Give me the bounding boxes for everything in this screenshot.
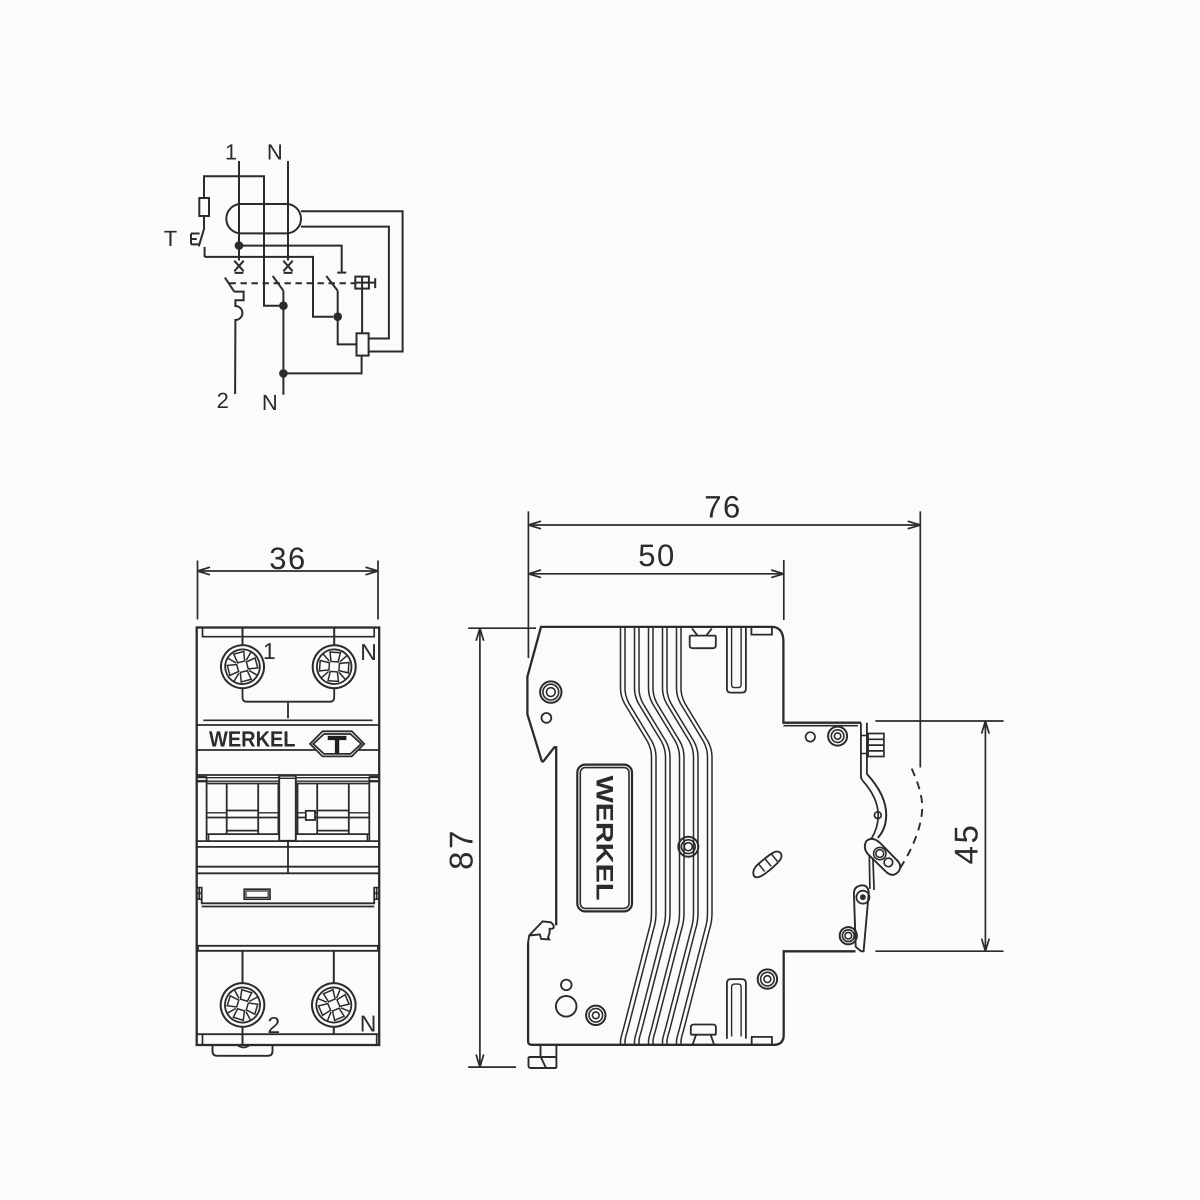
svg-text:1: 1: [225, 140, 237, 165]
svg-text:WERKEL: WERKEL: [591, 776, 618, 901]
svg-text:87: 87: [442, 828, 479, 870]
svg-text:76: 76: [704, 490, 741, 525]
svg-text:N: N: [262, 390, 278, 415]
svg-text:45: 45: [947, 823, 984, 865]
svg-text:N: N: [360, 639, 377, 665]
svg-text:T: T: [164, 226, 177, 251]
svg-text:WERKEL: WERKEL: [209, 727, 296, 752]
svg-text:1: 1: [263, 638, 276, 664]
svg-text:N: N: [267, 140, 283, 165]
svg-text:N: N: [360, 1011, 377, 1037]
svg-text:2: 2: [217, 388, 229, 413]
svg-text:50: 50: [638, 538, 675, 573]
